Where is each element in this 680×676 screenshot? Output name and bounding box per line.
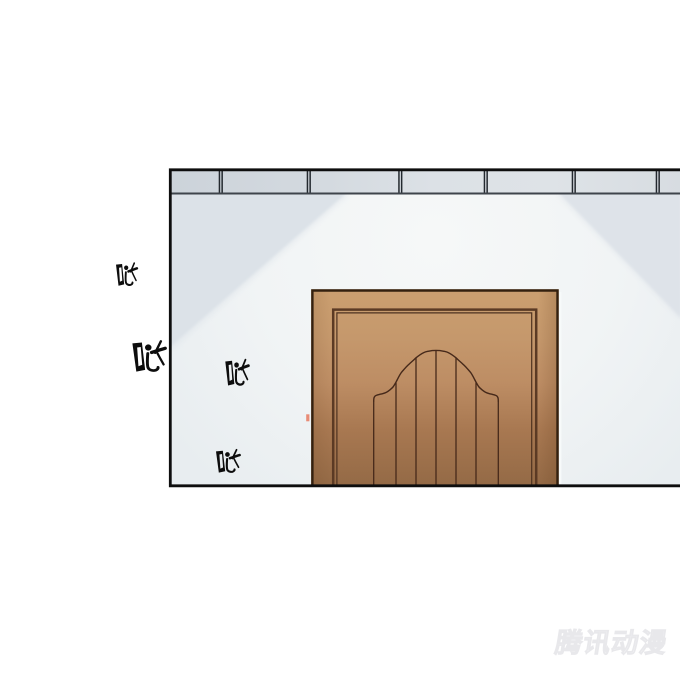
svg-text:腾讯动漫: 腾讯动漫 (553, 627, 670, 658)
